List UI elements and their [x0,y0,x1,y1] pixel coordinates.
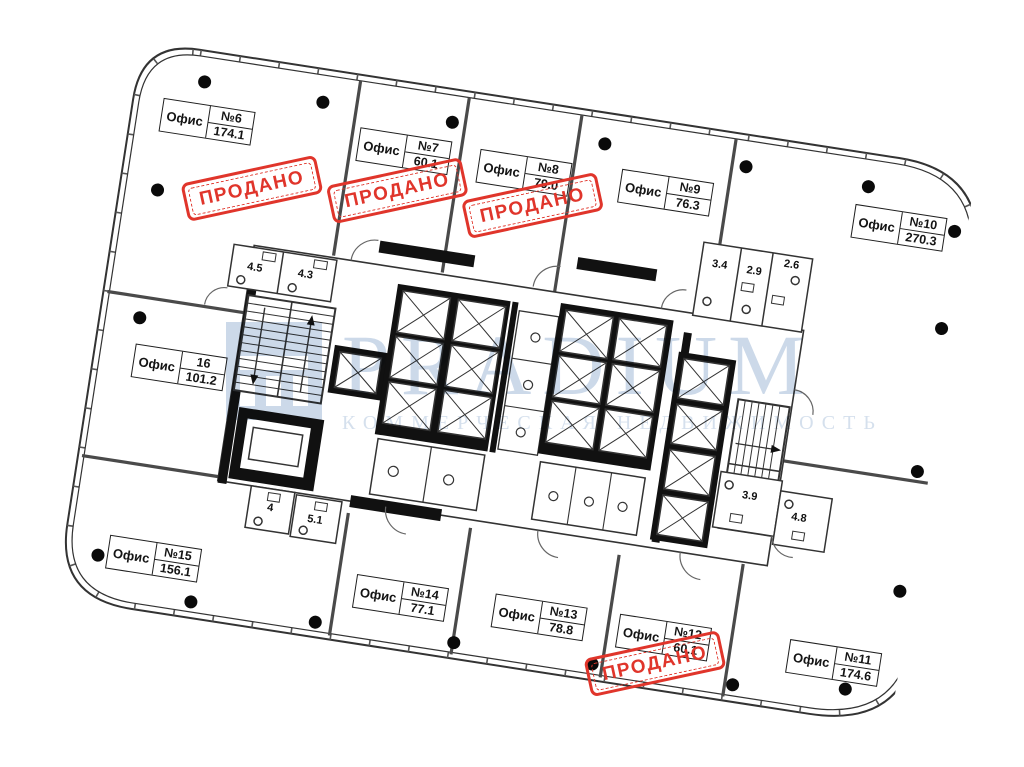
floor-plan: Офис №6 174.1 Офис №7 60.1 Офис №8 79.0 … [49,35,977,736]
wet-room-area: 4.5 [246,261,263,275]
office-word: Офис [492,595,543,634]
office-word: Офис [852,205,903,244]
wc-block-top-right [693,242,813,332]
floor-plan-page: Офис №6 174.1 Офис №7 60.1 Офис №8 79.0 … [0,0,1024,767]
stairs-left [234,295,336,403]
office-word: Офис [618,170,669,209]
office-word: Офис [356,128,407,167]
office-word: Офис [160,99,211,138]
wet-room-area: 3.4 [711,258,728,272]
office-word: Офис [106,536,157,575]
elevator-left [328,345,389,401]
wet-room-area: 5.1 [306,513,323,527]
wet-room-area: 2.9 [746,264,763,278]
office-word: Офис [132,345,183,384]
shaft-room [228,407,324,491]
wet-room-area: 4.8 [790,511,807,525]
office-word: Офис [353,575,404,614]
office-word: Офис [786,640,837,679]
wet-room-area: 4.3 [297,267,314,281]
office-word: Офис [477,150,528,189]
wet-room-area: 3.9 [741,489,758,503]
wet-room-area: 2.6 [783,258,800,272]
